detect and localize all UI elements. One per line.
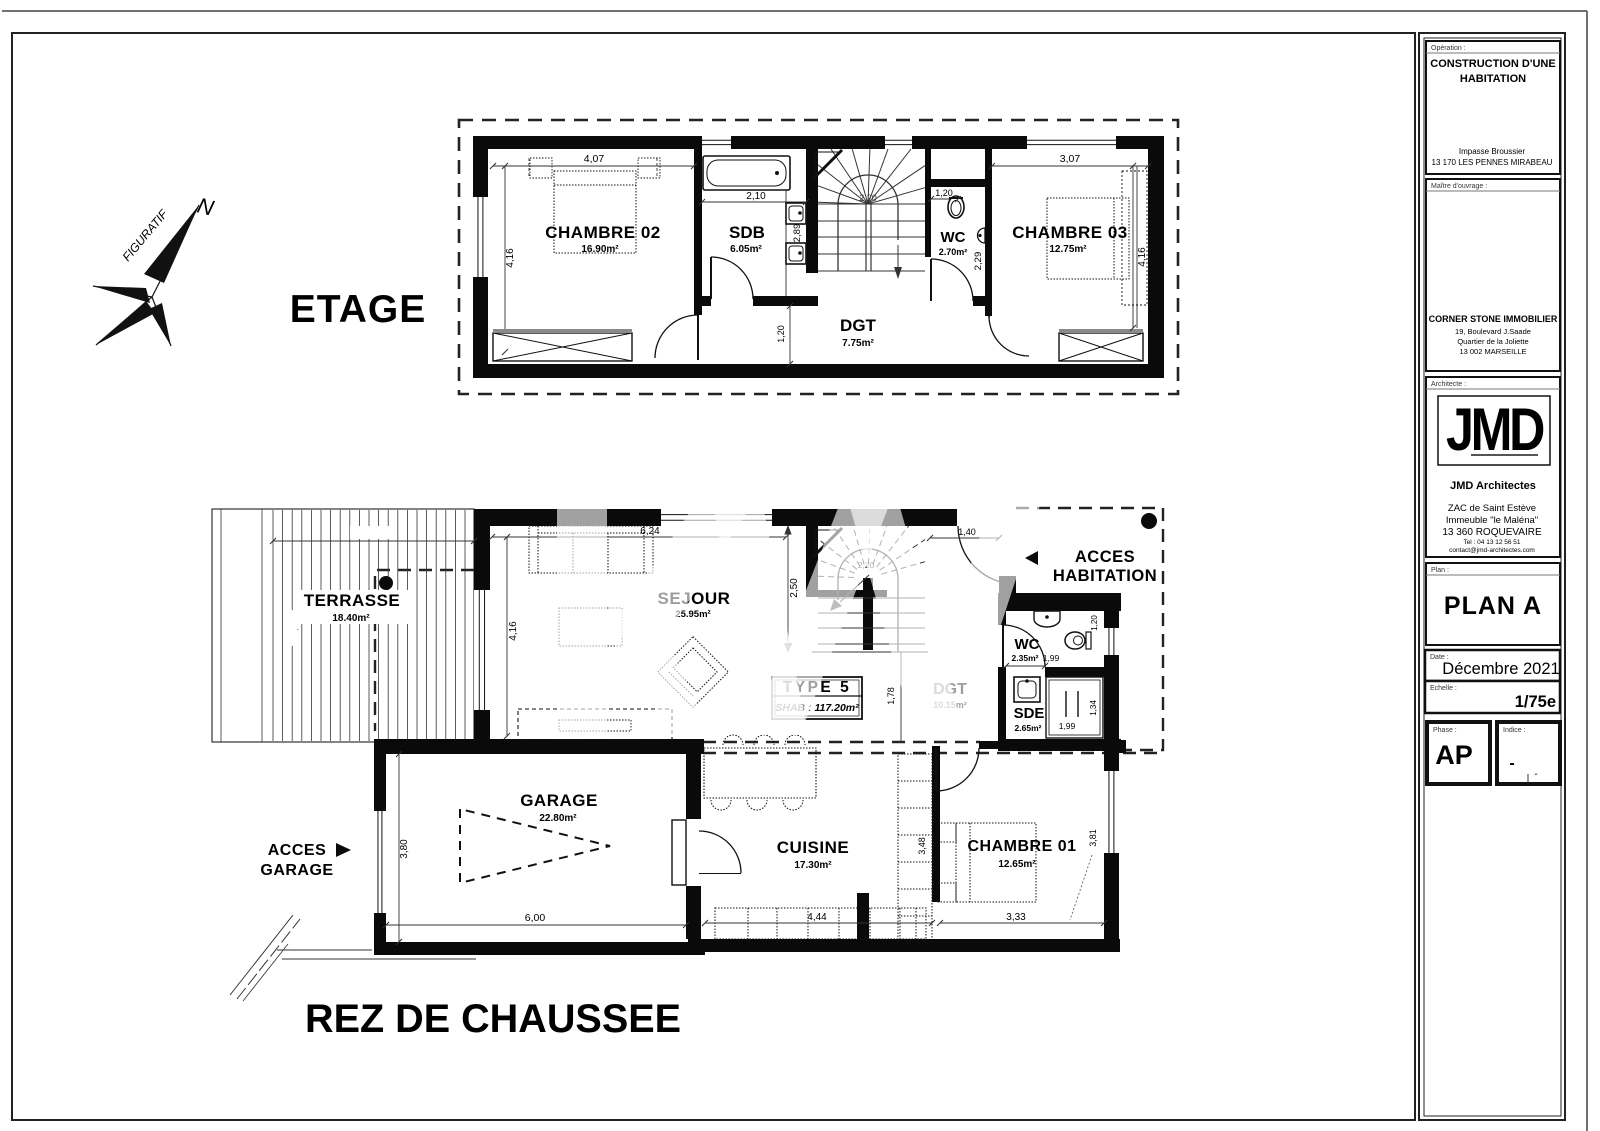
svg-text:2.70m²: 2.70m² bbox=[939, 247, 968, 257]
svg-text:AP: AP bbox=[1435, 740, 1473, 770]
svg-text:2,89: 2,89 bbox=[792, 224, 803, 243]
svg-text:3,81: 3,81 bbox=[1088, 829, 1098, 847]
svg-text:CORNER STONE IMMOBILIER: CORNER STONE IMMOBILIER bbox=[1429, 314, 1558, 324]
svg-text:18.40m²: 18.40m² bbox=[332, 613, 370, 624]
svg-text:4,07: 4,07 bbox=[584, 153, 605, 165]
svg-text:6,24: 6,24 bbox=[640, 526, 660, 537]
svg-text:13 002 MARSEILLE: 13 002 MARSEILLE bbox=[1459, 347, 1526, 356]
svg-text:CHAMBRE 03: CHAMBRE 03 bbox=[1012, 223, 1128, 242]
svg-text:3,07: 3,07 bbox=[1060, 153, 1081, 165]
svg-text:-: - bbox=[1509, 755, 1514, 772]
svg-text:1,34: 1,34 bbox=[1089, 700, 1098, 716]
svg-text:1,20: 1,20 bbox=[935, 188, 953, 198]
svg-text:1/75e: 1/75e bbox=[1515, 693, 1556, 711]
svg-text:Décembre 2021: Décembre 2021 bbox=[1442, 660, 1559, 678]
svg-text:19, Boulevard J.Saade: 19, Boulevard J.Saade bbox=[1455, 327, 1531, 336]
svg-text:1,20: 1,20 bbox=[1090, 615, 1099, 631]
svg-text:1,40: 1,40 bbox=[958, 527, 976, 537]
svg-text:4,16: 4,16 bbox=[508, 621, 519, 641]
svg-text:Quartier de la Joliette: Quartier de la Joliette bbox=[1457, 337, 1528, 346]
svg-text:2,50: 2,50 bbox=[789, 578, 800, 598]
svg-text:WC: WC bbox=[941, 229, 966, 246]
svg-text:4,16: 4,16 bbox=[505, 248, 516, 268]
svg-text:6,00: 6,00 bbox=[525, 912, 546, 924]
svg-text:-: - bbox=[1534, 769, 1537, 780]
svg-text:SDB: SDB bbox=[729, 223, 765, 242]
svg-text:12.75m²: 12.75m² bbox=[1049, 244, 1087, 255]
svg-text:7.75m²: 7.75m² bbox=[842, 338, 874, 349]
svg-text:1,99: 1,99 bbox=[1059, 721, 1076, 731]
svg-text:3,80: 3,80 bbox=[399, 839, 410, 859]
svg-text:DGT: DGT bbox=[840, 316, 877, 335]
svg-text:Opération :: Opération : bbox=[1431, 45, 1466, 52]
svg-text:Maître d'ouvrage :: Maître d'ouvrage : bbox=[1431, 183, 1487, 190]
svg-text:Phase :: Phase : bbox=[1433, 727, 1457, 734]
svg-text:CHAMBRE 02: CHAMBRE 02 bbox=[545, 223, 661, 242]
svg-text:Indice :: Indice : bbox=[1503, 727, 1526, 734]
svg-text:WC: WC bbox=[1015, 636, 1040, 653]
svg-text:2.65m²: 2.65m² bbox=[1015, 723, 1042, 733]
svg-text:Tel : 04 13 12 56 51: Tel : 04 13 12 56 51 bbox=[1463, 539, 1520, 546]
svg-text:CHAMBRE 01: CHAMBRE 01 bbox=[967, 838, 1076, 855]
svg-text:CUISINE: CUISINE bbox=[777, 838, 849, 857]
svg-text:3,33: 3,33 bbox=[1006, 912, 1026, 923]
svg-text:Architecte :: Architecte : bbox=[1431, 381, 1466, 388]
svg-text:Echelle :: Echelle : bbox=[1430, 685, 1457, 692]
svg-text:2,20: 2,20 bbox=[859, 193, 877, 203]
svg-text:PLAN A: PLAN A bbox=[1444, 592, 1542, 620]
svg-text:4,16: 4,16 bbox=[1137, 247, 1148, 267]
svg-text:6.05m²: 6.05m² bbox=[730, 244, 762, 255]
svg-text:JMD Architectes: JMD Architectes bbox=[1450, 480, 1536, 492]
svg-text:3,48: 3,48 bbox=[917, 837, 927, 855]
svg-text:2.35m²: 2.35m² bbox=[1012, 653, 1039, 663]
svg-text:16.90m²: 16.90m² bbox=[581, 244, 619, 255]
svg-text:Immeuble "le Maléna": Immeuble "le Maléna" bbox=[1446, 515, 1538, 526]
svg-text:ACCES: ACCES bbox=[268, 842, 327, 859]
svg-text:22.80m²: 22.80m² bbox=[539, 813, 577, 824]
svg-text:contact@jmd-architectes.com: contact@jmd-architectes.com bbox=[1449, 547, 1535, 554]
svg-text:HABITATION: HABITATION bbox=[1460, 73, 1526, 85]
svg-text:1,99: 1,99 bbox=[1043, 653, 1060, 663]
svg-text:4,44: 4,44 bbox=[807, 912, 827, 923]
svg-text:GARAGE: GARAGE bbox=[260, 862, 333, 879]
svg-text:TERRASSE: TERRASSE bbox=[304, 591, 401, 610]
svg-text:2,10: 2,10 bbox=[746, 191, 766, 202]
svg-text:1,78: 1,78 bbox=[886, 687, 896, 705]
svg-text:13 360 ROQUEVAIRE: 13 360 ROQUEVAIRE bbox=[1442, 527, 1542, 538]
svg-text:REZ DE CHAUSSEE: REZ DE CHAUSSEE bbox=[305, 997, 681, 1041]
svg-text:12.65m²: 12.65m² bbox=[998, 859, 1036, 870]
svg-text:1,20: 1,20 bbox=[776, 325, 786, 343]
svg-text:JMD: JMD bbox=[1446, 396, 1543, 463]
svg-text:ACCES: ACCES bbox=[1075, 548, 1135, 566]
svg-text:13 170 LES PENNES MIRABEAU: 13 170 LES PENNES MIRABEAU bbox=[1432, 158, 1553, 167]
svg-text:SDE: SDE bbox=[1014, 705, 1045, 722]
svg-text:ETAGE: ETAGE bbox=[290, 288, 426, 331]
svg-text:GARAGE: GARAGE bbox=[520, 791, 598, 810]
svg-text:CONSTRUCTION D'UNE: CONSTRUCTION D'UNE bbox=[1430, 58, 1555, 70]
svg-text:ZAC de Saint Estève: ZAC de Saint Estève bbox=[1448, 503, 1536, 514]
svg-text:HABITATION: HABITATION bbox=[1053, 567, 1157, 585]
svg-text:Impasse Broussier: Impasse Broussier bbox=[1459, 147, 1526, 156]
svg-text:Plan :: Plan : bbox=[1431, 567, 1449, 574]
svg-text:2,29: 2,29 bbox=[973, 252, 984, 271]
svg-text:17.30m²: 17.30m² bbox=[794, 860, 832, 871]
